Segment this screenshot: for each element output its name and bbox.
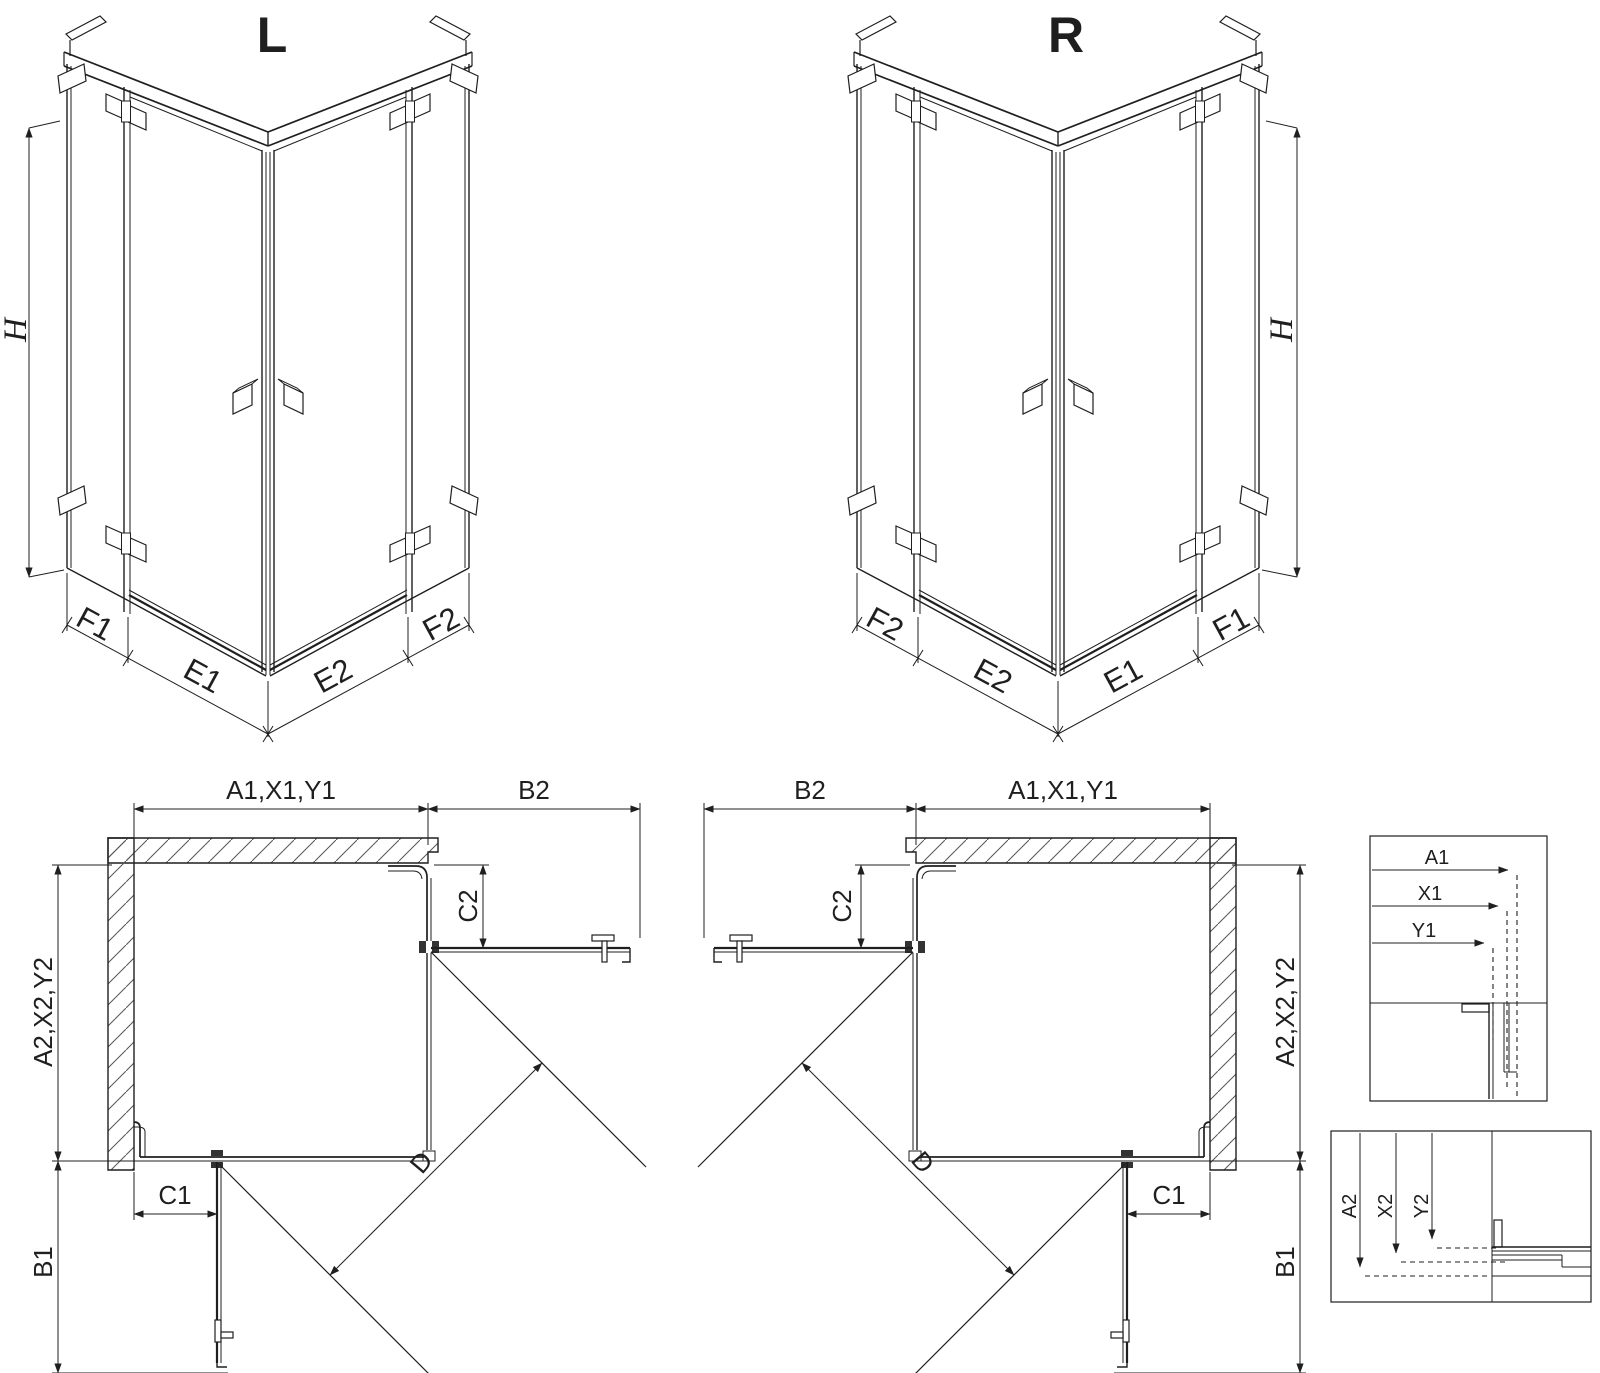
plan-diagonal-label-l: D bbox=[404, 1145, 439, 1179]
detail-a1-label: A1 bbox=[1425, 847, 1449, 869]
detail-box-depth-refs: A2 X2 Y2 bbox=[1331, 1131, 1591, 1302]
wall-side-r bbox=[1210, 838, 1236, 1170]
iso-view-r: R H F2 E2 E1 F1 bbox=[848, 7, 1300, 742]
view-label-l: L bbox=[257, 7, 288, 63]
view-label-r: R bbox=[1048, 7, 1084, 63]
dim-label-e2-l: E2 bbox=[308, 651, 358, 700]
dim-label-f1-l: F1 bbox=[71, 600, 120, 648]
plan-width-label-r: A1,X1,Y1 bbox=[1008, 775, 1118, 805]
dim-label-f1-r: F1 bbox=[1207, 600, 1256, 648]
plan-fixed-bottom-label-r: C1 bbox=[1152, 1180, 1185, 1210]
plan-view-l: A1,X1,Y1 B2 A2,X2,Y2 B1 C2 C1 D bbox=[28, 775, 646, 1373]
detail-box-width-refs: A1 X1 Y1 bbox=[1370, 836, 1547, 1101]
plan-fixed-top-label-r: C2 bbox=[827, 889, 857, 922]
detail-y2-label: Y2 bbox=[1411, 1194, 1433, 1218]
plan-return-side-label-l: B1 bbox=[28, 1246, 58, 1278]
dim-label-f2-r: F2 bbox=[861, 600, 910, 648]
dim-label-f2-l: F2 bbox=[417, 600, 466, 648]
plan-diagonal-label-r: D bbox=[905, 1145, 940, 1179]
detail-y1-label: Y1 bbox=[1412, 920, 1436, 942]
plan-depth-label-l: A2,X2,Y2 bbox=[28, 957, 58, 1067]
plan-return-side-label-r: B1 bbox=[1270, 1246, 1300, 1278]
height-dim-label-l: H bbox=[0, 316, 34, 343]
dim-label-e1-l: E1 bbox=[178, 651, 228, 700]
wall-top-l bbox=[108, 838, 438, 863]
technical-drawing-sheet: L H F1 E1 E2 F2 R H F2 E2 E1 F1 A1,X1,Y1… bbox=[0, 0, 1600, 1373]
wall-side-l bbox=[108, 838, 134, 1170]
plan-depth-label-r: A2,X2,Y2 bbox=[1270, 957, 1300, 1067]
dim-label-e2-r: E2 bbox=[968, 651, 1018, 700]
drawing-canvas: L H F1 E1 E2 F2 R H F2 E2 E1 F1 A1,X1,Y1… bbox=[0, 0, 1600, 1373]
dim-label-e1-r: E1 bbox=[1098, 651, 1148, 700]
plan-fixed-bottom-label-l: C1 bbox=[158, 1180, 191, 1210]
iso-view-l: L H F1 E1 E2 F2 bbox=[0, 7, 478, 742]
detail-x2-label: X2 bbox=[1375, 1194, 1397, 1218]
plan-return-top-label-r: B2 bbox=[794, 775, 826, 805]
plan-return-top-label-l: B2 bbox=[518, 775, 550, 805]
plan-view-r: B2 A1,X1,Y1 A2,X2,Y2 B1 C2 C1 D bbox=[698, 775, 1306, 1373]
height-dim-label-r: H bbox=[1264, 316, 1300, 343]
wall-top-r bbox=[906, 838, 1236, 863]
detail-a2-label: A2 bbox=[1339, 1194, 1361, 1218]
plan-width-label-l: A1,X1,Y1 bbox=[226, 775, 336, 805]
detail-x1-label: X1 bbox=[1418, 883, 1442, 905]
plan-fixed-top-label-l: C2 bbox=[453, 889, 483, 922]
